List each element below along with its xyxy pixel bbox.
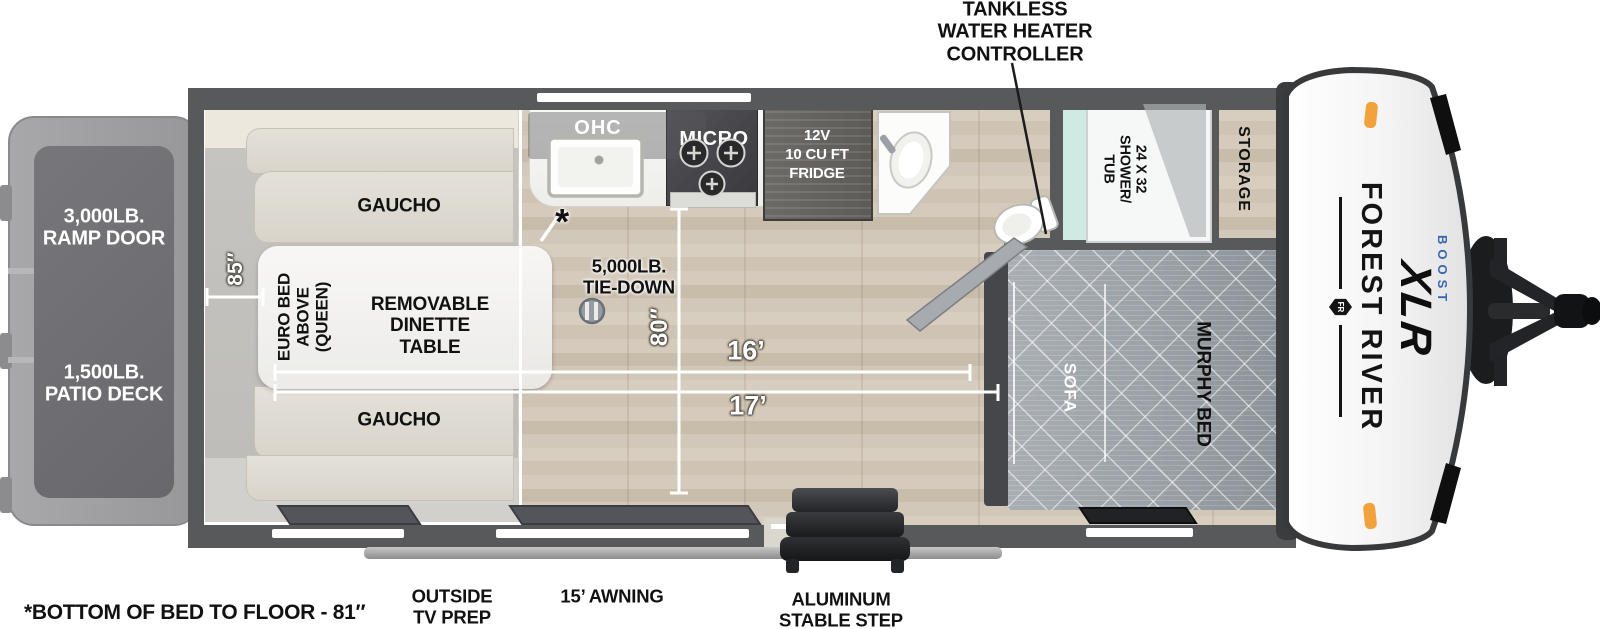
awning-label: 15’ AWNING — [560, 587, 663, 608]
model-label: XLR — [1396, 259, 1436, 359]
floorplan-canvas: 3,000LB.RAMP DOOR 1,500LB.PATIO DECK OHC… — [0, 0, 1600, 629]
step-label: ALUMINUMSTABLE STEP — [779, 589, 903, 629]
tankless-callout: TANKLESSWATER HEATERCONTROLLER — [938, 0, 1093, 66]
hitch-jack-tube — [1488, 303, 1550, 319]
brand-name: FOREST RIVER — [1354, 182, 1387, 432]
fr-emblem-icon: FR — [1329, 298, 1352, 316]
tv-prep-label: OUTSIDETV PREP — [412, 586, 493, 627]
bed-floor-note: *BOTTOM OF BED TO FLOOR - 81″ — [24, 601, 365, 625]
model-block: BOOST XLR — [1394, 229, 1452, 389]
brand-accent-line — [1339, 325, 1342, 417]
brand-block: FOREST RIVER FR — [1331, 142, 1385, 472]
brand-accent-line — [1339, 197, 1342, 289]
